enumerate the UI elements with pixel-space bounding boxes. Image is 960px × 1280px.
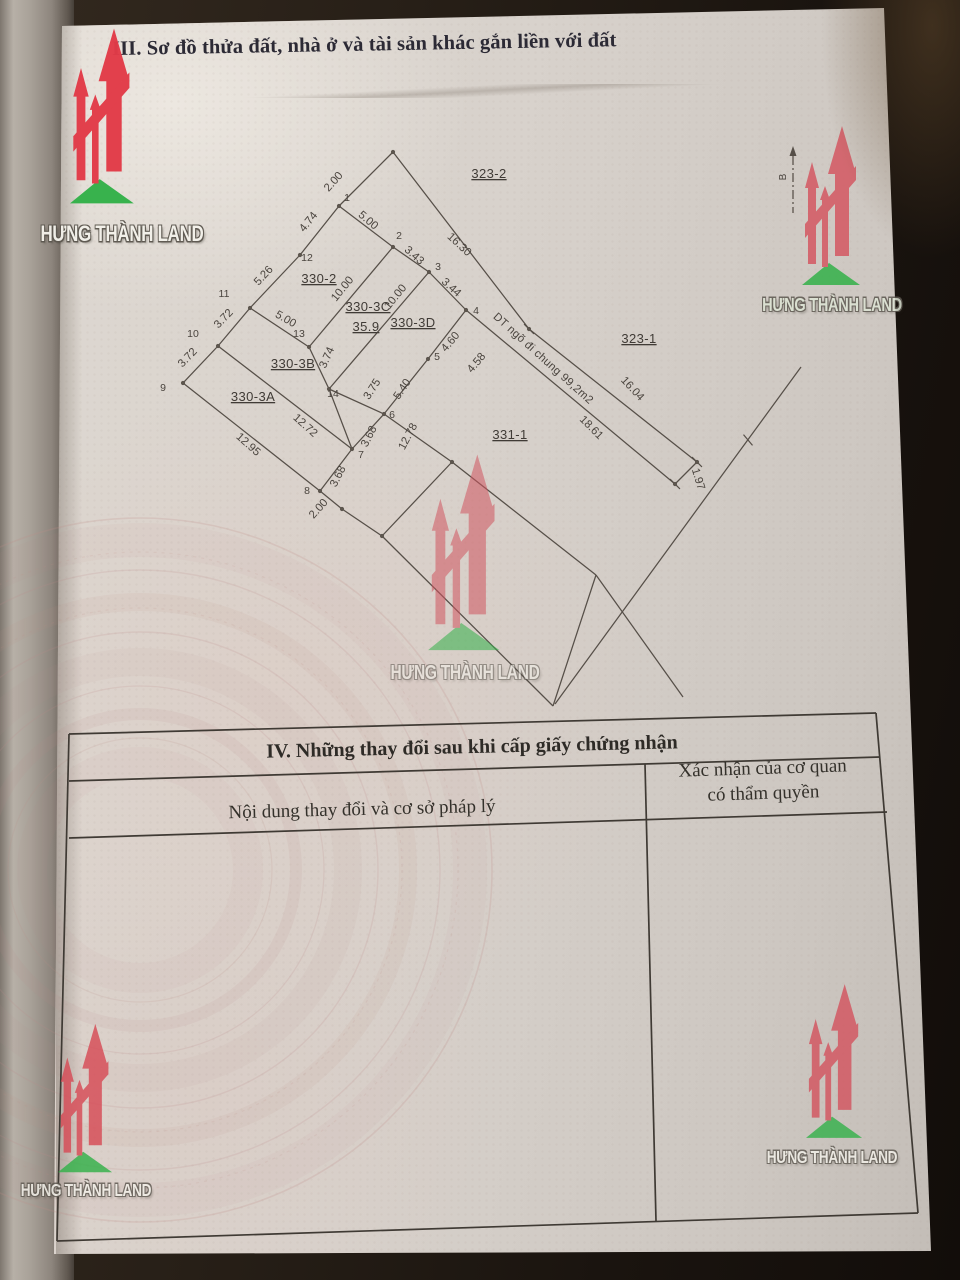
photo-scene: 2.005.003.433.4416.304.745.263.723.7210.… bbox=[0, 0, 960, 1280]
brand-watermark-right-upper: HƯNG THÀNH LAND bbox=[802, 124, 907, 315]
brand-watermark-top-left: HƯNG THÀNH LAND bbox=[70, 26, 220, 245]
brand-watermark-bottom-left: HƯNG THÀNH LAND bbox=[58, 1022, 156, 1199]
brand-name: HƯNG THÀNH LAND bbox=[762, 295, 903, 317]
brand-watermark-bottom-right: HƯNG THÀNH LAND bbox=[806, 982, 902, 1166]
table-col2-header-line2: có thẩm quyền bbox=[707, 781, 819, 806]
brand-watermark-center: HƯNG THÀNH LAND bbox=[428, 452, 550, 683]
logo-arrows-icon bbox=[58, 1022, 114, 1176]
logo-arrows-icon bbox=[802, 124, 862, 289]
table-col2-header: Xác nhận của cơ quan có thẩm quyền bbox=[649, 753, 876, 809]
logo-arrows-icon bbox=[428, 452, 502, 655]
table-col2-header-line1: Xác nhận của cơ quan bbox=[678, 755, 847, 781]
logo-arrows-icon bbox=[70, 26, 136, 208]
brand-name: HƯNG THÀNH LAND bbox=[385, 662, 545, 685]
logo-arrows-icon bbox=[806, 982, 864, 1142]
brand-name: HƯNG THÀNH LAND bbox=[766, 1148, 898, 1168]
brand-name: HƯNG THÀNH LAND bbox=[30, 222, 214, 248]
brand-name: HƯNG THÀNH LAND bbox=[20, 1181, 152, 1201]
